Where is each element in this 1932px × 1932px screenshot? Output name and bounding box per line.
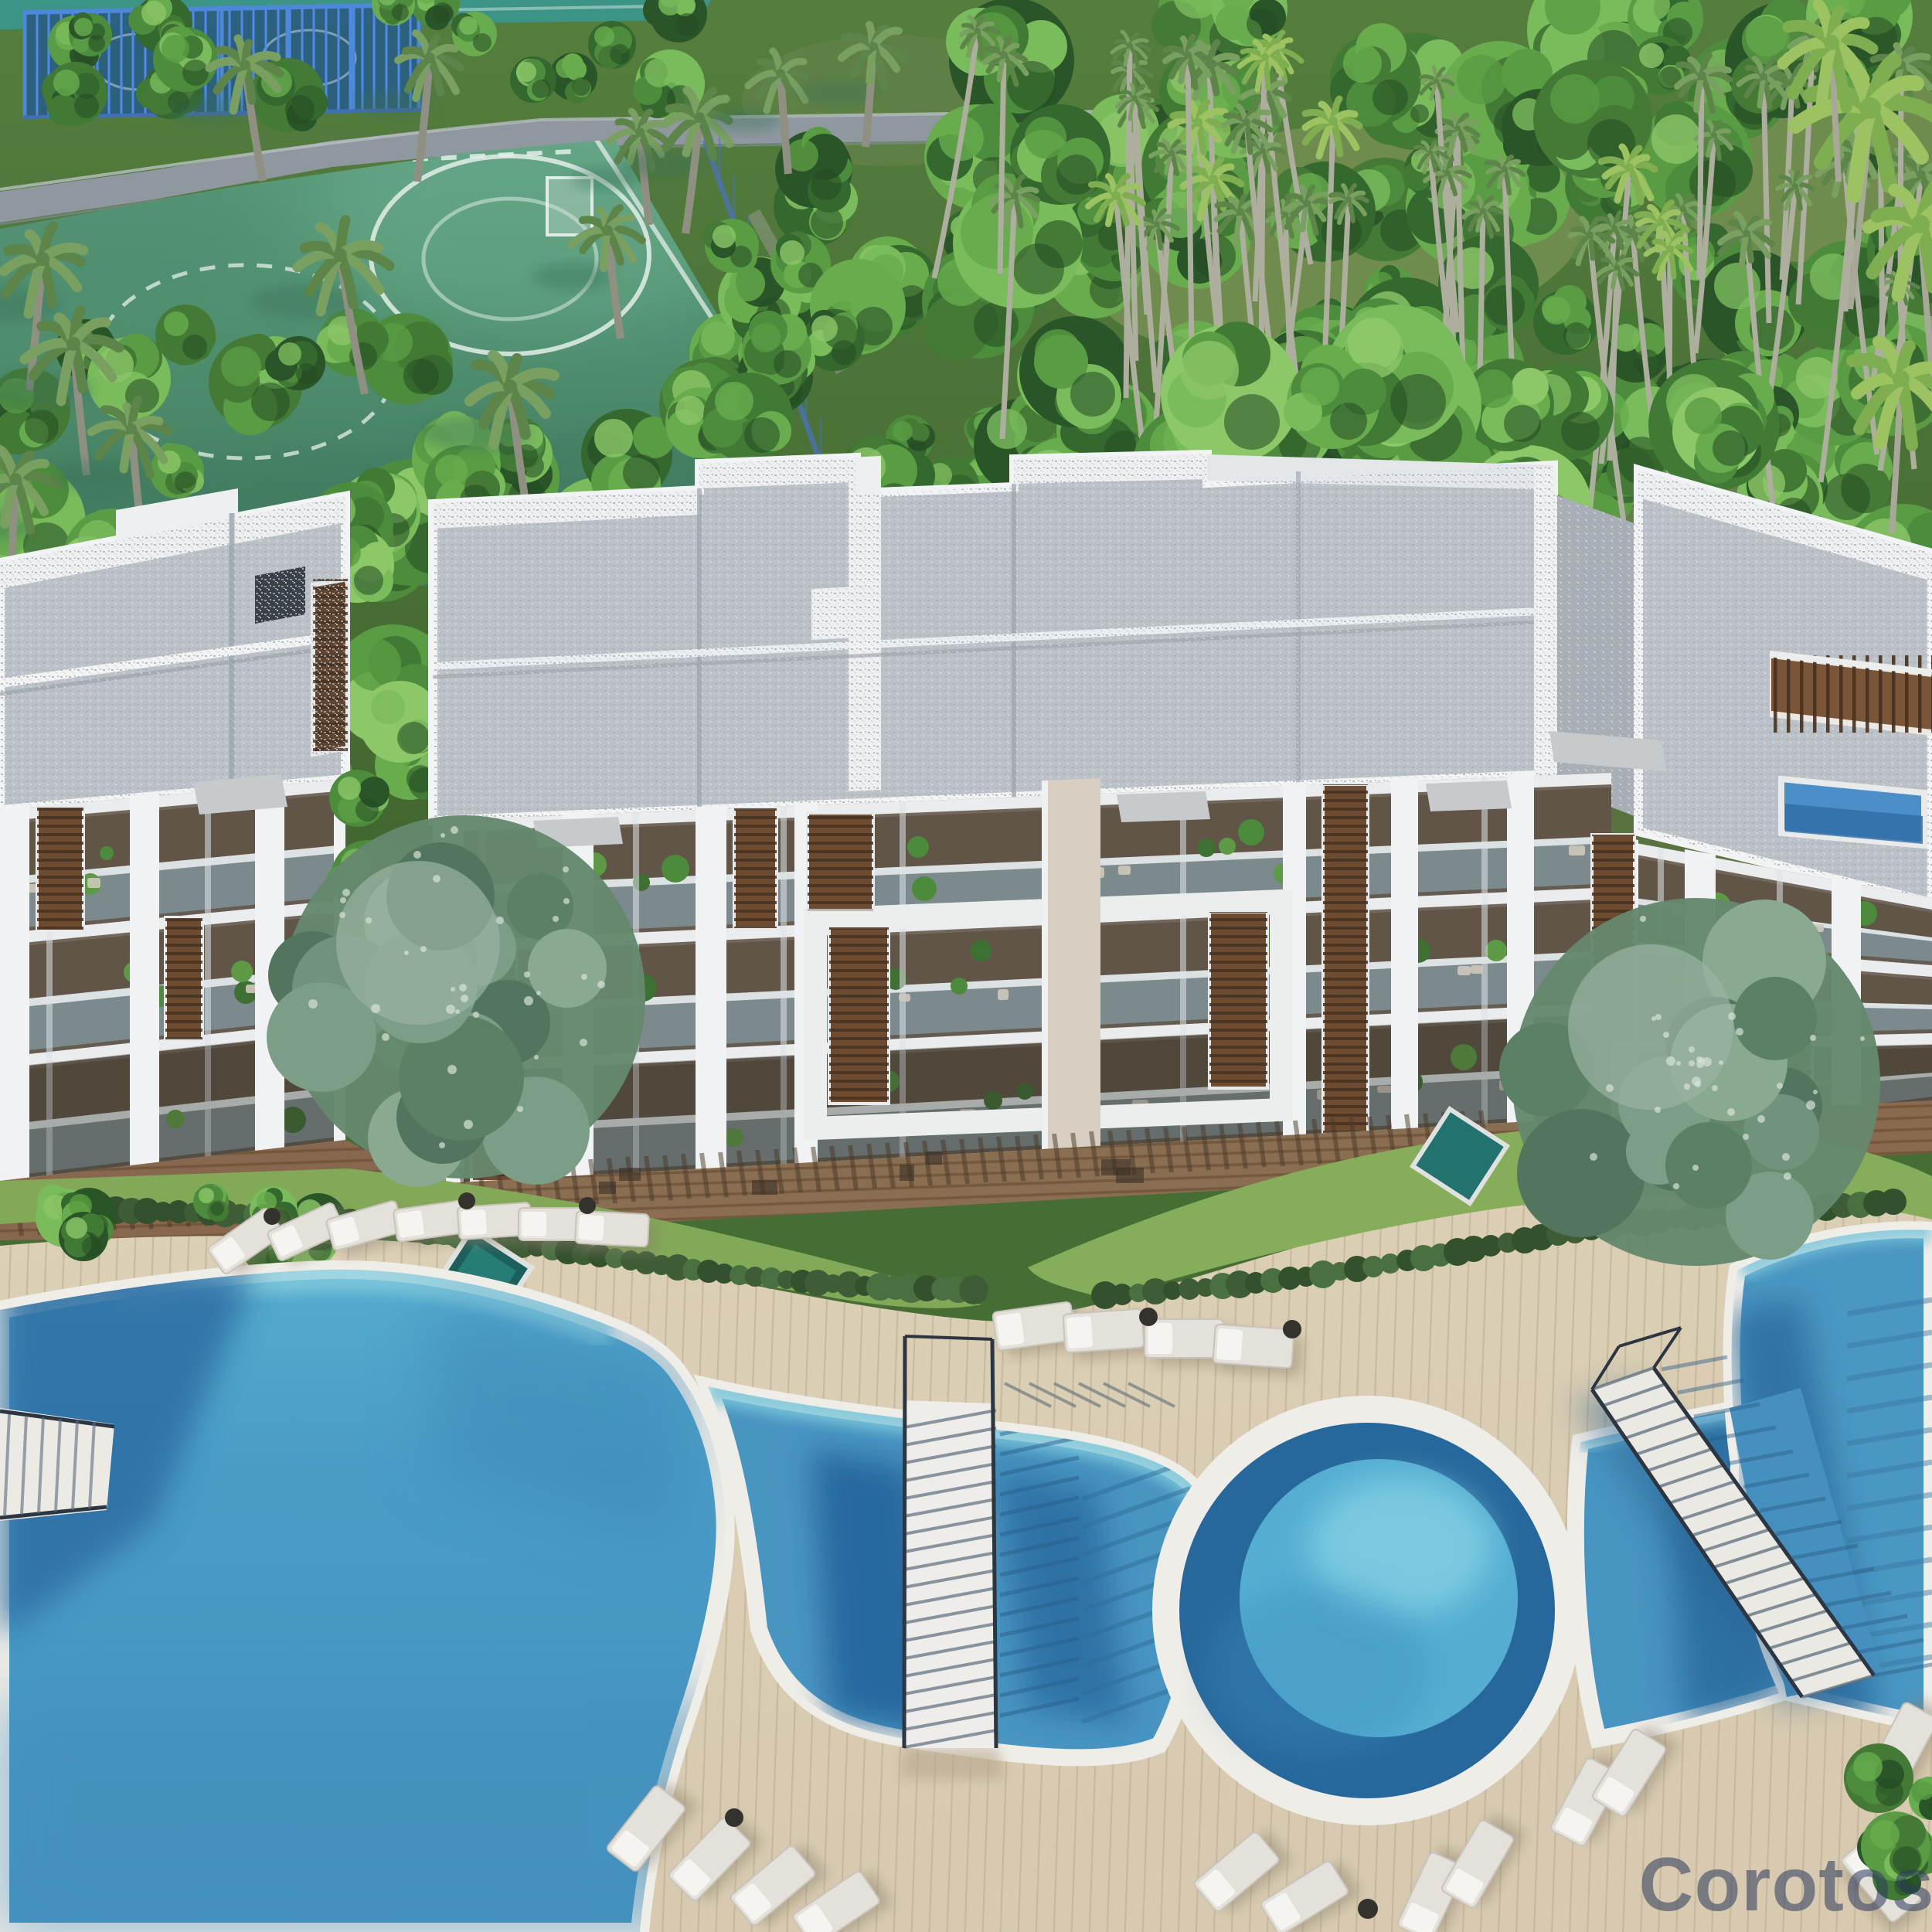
svg-text:Corotos: Corotos bbox=[1639, 1842, 1932, 1927]
